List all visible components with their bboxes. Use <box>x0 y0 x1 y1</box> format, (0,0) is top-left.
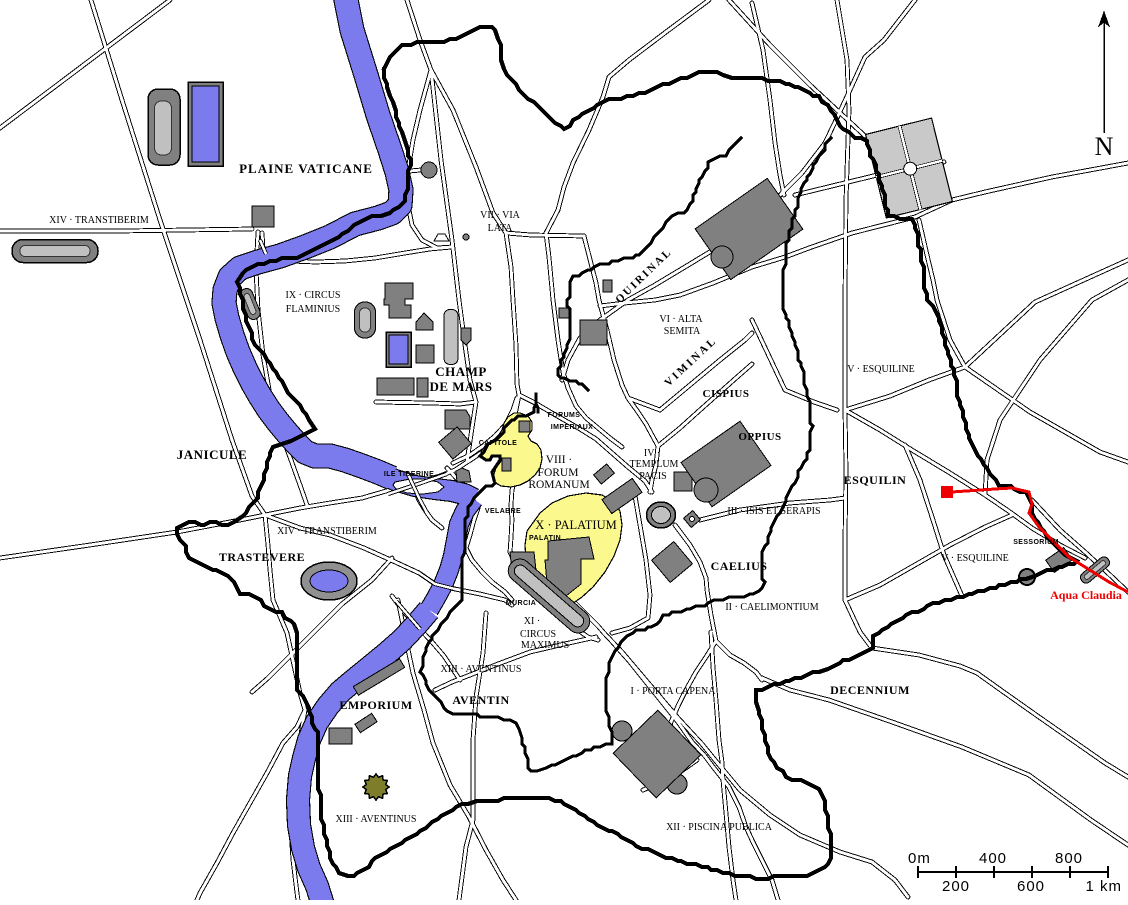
svg-text:CISPIUS: CISPIUS <box>703 388 750 400</box>
svg-text:I · PORTA CAPENA: I · PORTA CAPENA <box>631 686 717 697</box>
svg-text:VIII ·: VIII · <box>546 454 573 466</box>
svg-text:CAPITOLE: CAPITOLE <box>479 440 517 447</box>
svg-text:MAXIMUS: MAXIMUS <box>521 640 569 651</box>
svg-text:SEMITA: SEMITA <box>664 326 701 337</box>
svg-text:V · ESQUILINE: V · ESQUILINE <box>941 553 1009 564</box>
svg-text:XIV · TRANSTIBERIM: XIV · TRANSTIBERIM <box>277 526 377 537</box>
svg-text:OPPIUS: OPPIUS <box>738 431 781 443</box>
svg-text:DECENNIUM: DECENNIUM <box>830 683 910 697</box>
svg-text:Aqua Claudia: Aqua Claudia <box>1050 588 1122 602</box>
svg-text:CAELIUS: CAELIUS <box>711 559 768 573</box>
svg-text:FORUMS: FORUMS <box>548 412 581 419</box>
svg-text:IV ·: IV · <box>644 448 660 459</box>
svg-text:III · ISIS ET SERAPIS: III · ISIS ET SERAPIS <box>727 506 820 517</box>
svg-text:SESSORIUM: SESSORIUM <box>1013 539 1059 546</box>
svg-text:N: N <box>1095 132 1114 161</box>
svg-text:800: 800 <box>1055 850 1083 867</box>
svg-text:MURCIA: MURCIA <box>506 600 536 607</box>
svg-text:EMPORIUM: EMPORIUM <box>339 698 412 712</box>
svg-text:ESQUILIN: ESQUILIN <box>844 473 907 487</box>
svg-text:LATA: LATA <box>488 223 514 234</box>
svg-text:CHAMP: CHAMP <box>435 364 487 379</box>
svg-text:XIII · AVENTINUS: XIII · AVENTINUS <box>336 814 417 825</box>
svg-text:0m: 0m <box>908 850 931 867</box>
svg-text:AVENTIN: AVENTIN <box>452 693 509 707</box>
svg-text:VELABRE: VELABRE <box>485 508 521 515</box>
svg-text:DE MARS: DE MARS <box>429 379 492 394</box>
svg-text:PACIS: PACIS <box>639 471 666 482</box>
svg-text:ROMANUM: ROMANUM <box>528 479 589 491</box>
svg-text:400: 400 <box>979 850 1007 867</box>
svg-text:V · ESQUILINE: V · ESQUILINE <box>847 364 915 375</box>
svg-text:CIRCUS: CIRCUS <box>520 629 556 640</box>
svg-text:FLAMINIUS: FLAMINIUS <box>286 304 340 315</box>
svg-text:PLAINE VATICANE: PLAINE VATICANE <box>239 161 373 176</box>
svg-text:FORUM: FORUM <box>538 467 579 479</box>
svg-text:TEMPLUM: TEMPLUM <box>630 459 679 470</box>
svg-text:1 km: 1 km <box>1085 878 1122 895</box>
svg-text:XIII · AVENTINUS: XIII · AVENTINUS <box>441 664 522 675</box>
svg-text:XI ·: XI · <box>524 616 540 627</box>
svg-text:XIV · TRANSTIBERIM: XIV · TRANSTIBERIM <box>49 215 149 226</box>
svg-text:200: 200 <box>942 878 970 895</box>
svg-text:IMPERIAUX: IMPERIAUX <box>551 424 594 431</box>
svg-text:ILE TIBERINE: ILE TIBERINE <box>384 471 434 478</box>
svg-text:600: 600 <box>1017 878 1045 895</box>
svg-text:XII · PISCINA PUBLICA: XII · PISCINA PUBLICA <box>666 822 773 833</box>
svg-text:TRASTEVERE: TRASTEVERE <box>219 550 305 564</box>
svg-text:JANICULE: JANICULE <box>177 447 247 462</box>
svg-text:VII · VIA: VII · VIA <box>480 210 521 221</box>
svg-text:PALATIN: PALATIN <box>529 535 561 542</box>
svg-text:X · PALATIUM: X · PALATIUM <box>535 518 617 532</box>
svg-text:IX · CIRCUS: IX · CIRCUS <box>285 290 340 301</box>
svg-text:II · CAELIMONTIUM: II · CAELIMONTIUM <box>725 602 818 613</box>
svg-text:VI · ALTA: VI · ALTA <box>659 314 703 325</box>
